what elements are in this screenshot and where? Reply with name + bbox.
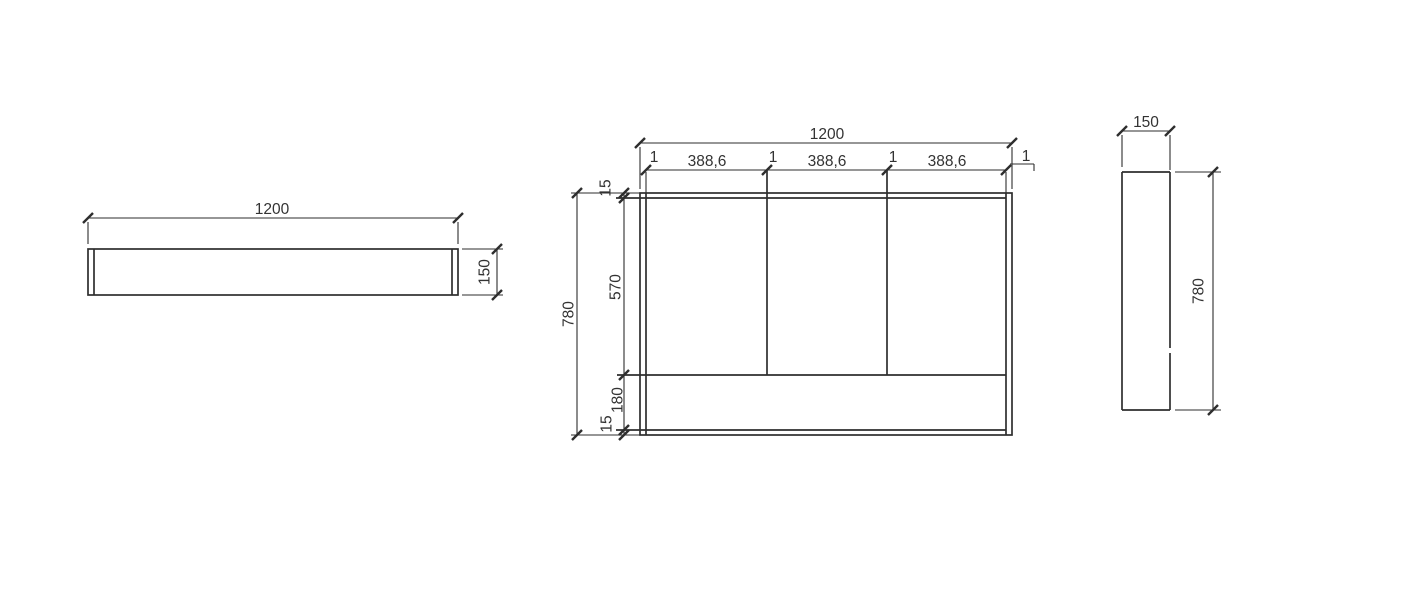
side-view-depth-label: 150 xyxy=(1133,114,1159,131)
drawing-canvas: 1200 150 1200 xyxy=(0,0,1420,603)
front-view-outline xyxy=(640,193,1012,435)
top-view-depth-label: 150 xyxy=(477,259,494,285)
side-view-height-dimension: 780 xyxy=(1175,167,1221,415)
side-view-depth-dimension: 150 xyxy=(1117,114,1175,170)
front-view-section-dimension-chain: 1 1 1 388,6 388,6 388,6 1 xyxy=(641,148,1034,193)
front-view-width-label: 1200 xyxy=(810,126,845,143)
gap-label-1: 1 xyxy=(650,149,659,166)
top-view-outline xyxy=(88,249,458,295)
top-panel-thickness-label: 15 xyxy=(598,179,615,196)
side-view-height-label: 780 xyxy=(1191,278,1208,304)
section-width-label-3: 388,6 xyxy=(928,153,967,170)
side-view: 150 780 xyxy=(1117,114,1221,415)
gap-label-3: 1 xyxy=(889,149,898,166)
bottom-panel-thickness-label: 15 xyxy=(599,415,616,432)
front-view-height-label: 780 xyxy=(561,301,578,327)
gap-label-4: 1 xyxy=(1022,148,1031,165)
top-view-depth-dimension: 150 xyxy=(462,244,503,300)
gap-label-2: 1 xyxy=(769,149,778,166)
section-width-label-2: 388,6 xyxy=(808,153,847,170)
technical-drawing: 1200 150 1200 xyxy=(0,0,1420,603)
top-view-width-label: 1200 xyxy=(255,201,290,218)
section-width-label-1: 388,6 xyxy=(688,153,727,170)
front-view-vertical-dimension-chain: 15 570 180 15 xyxy=(598,179,647,440)
lower-section-height-label: 180 xyxy=(610,387,627,413)
upper-section-height-label: 570 xyxy=(608,274,625,300)
front-view-height-dimension: 780 xyxy=(561,188,642,440)
top-view: 1200 150 xyxy=(83,201,503,300)
top-view-width-dimension: 1200 xyxy=(83,201,463,244)
front-view: 1200 1 1 1 388,6 388,6 388,6 1 xyxy=(561,126,1035,440)
